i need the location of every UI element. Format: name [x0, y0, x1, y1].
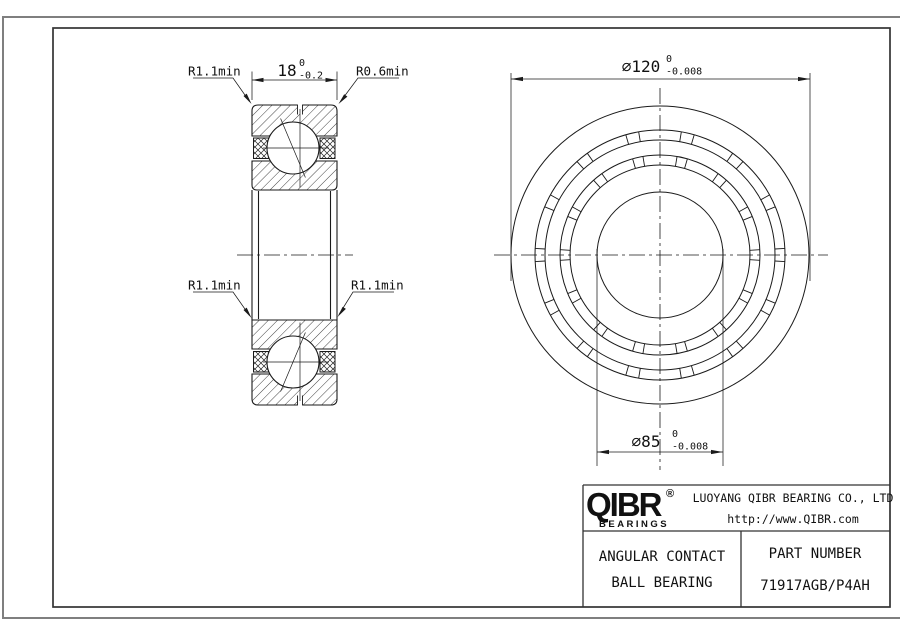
logo-registered-mark: ® [666, 488, 674, 500]
dim-width-tol-upper: 0 [299, 58, 305, 69]
dim-od-value: ∅120 [622, 57, 661, 76]
logo-subtitle: BEARINGS [599, 519, 669, 530]
dim-bore-tol-upper: 0 [672, 429, 678, 440]
product-type-line2: BALL BEARING [611, 575, 712, 591]
company-logo: QIBR [586, 486, 663, 523]
dim-width-tol-lower: -0.2 [299, 71, 323, 82]
company-name: LUOYANG QIBR BEARING CO., LTD [693, 491, 894, 505]
title-block: QIBR ® BEARINGS LUOYANG QIBR BEARING CO.… [583, 485, 893, 607]
label-radius-top-right: R0.6min [356, 64, 409, 79]
arrow-right [326, 78, 338, 82]
front-centerlines [494, 88, 828, 470]
dim-od [511, 73, 810, 281]
dim-width-value: 18 [277, 61, 296, 80]
drawing-page: 18 0 -0.2 R1.1min R0.6min R1.1min R1.1mi… [0, 0, 900, 636]
label-radius-top-left: R1.1min [188, 64, 241, 79]
dim-od-tol-lower: -0.008 [666, 67, 702, 78]
front-view: ∅120 0 -0.008 ∅85 0 -0.008 [494, 54, 828, 470]
part-number-value: 71917AGB/P4AH [760, 578, 870, 594]
label-radius-mid-right: R1.1min [351, 278, 404, 293]
bearing-drawing-canvas: 18 0 -0.2 R1.1min R0.6min R1.1min R1.1mi… [0, 0, 900, 636]
section-top [252, 105, 337, 191]
section-bottom [252, 320, 337, 406]
part-number-label: PART NUMBER [769, 546, 862, 562]
dim-bore-value: ∅85 [632, 432, 661, 451]
dim-od-tol-upper: 0 [666, 54, 672, 65]
section-view: 18 0 -0.2 R1.1min R0.6min R1.1min R1.1mi… [188, 58, 409, 406]
company-website: http://www.QIBR.com [727, 512, 859, 526]
product-type-line1: ANGULAR CONTACT [599, 549, 726, 565]
arrow-left [252, 78, 264, 82]
dim-bore-tol-lower: -0.008 [672, 442, 708, 453]
label-radius-mid-left: R1.1min [188, 278, 241, 293]
page-border-outer [3, 17, 900, 618]
